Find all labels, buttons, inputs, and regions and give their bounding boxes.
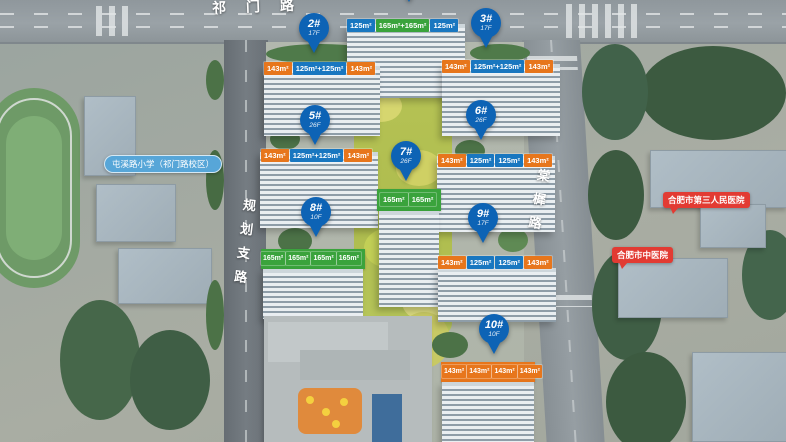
bubble-tail bbox=[670, 207, 679, 214]
unit-tag: 143m² bbox=[438, 154, 466, 167]
hospital-label-1[interactable]: 合肥市第三人民医院 bbox=[663, 192, 750, 208]
unit-tags-6: 143m² 125m² 125m² 143m² bbox=[438, 154, 552, 167]
pin-floors: 17F bbox=[308, 30, 319, 37]
building-pin-3[interactable]: 3# 17F bbox=[469, 8, 503, 48]
tree bbox=[432, 332, 468, 358]
unit-tag: 165m² bbox=[380, 193, 408, 206]
unit-tag: 165m² bbox=[286, 252, 310, 265]
pin-head: 5# 26F bbox=[300, 105, 330, 135]
tree-mass bbox=[130, 330, 210, 430]
pin-floors: 10F bbox=[310, 214, 321, 221]
unit-tag: 143m² bbox=[347, 62, 375, 75]
pin-tail bbox=[474, 127, 488, 140]
unit-tag: 143m² bbox=[442, 60, 470, 73]
unit-tag: 125m²+125m² bbox=[290, 149, 344, 162]
unit-tag: 125m² bbox=[495, 256, 523, 269]
building-pin-5[interactable]: 5# 26F bbox=[298, 105, 332, 145]
playground-dot bbox=[306, 396, 314, 404]
unit-tag: 143m² bbox=[492, 365, 516, 378]
school-building bbox=[118, 248, 212, 304]
pin-label: 10# bbox=[485, 320, 503, 331]
tower-8 bbox=[263, 269, 363, 319]
unit-tag: 143m² bbox=[438, 256, 466, 269]
pin-floors: 17F bbox=[477, 220, 488, 227]
building-pin-7[interactable]: 7# 26F bbox=[389, 141, 423, 181]
pin-tail bbox=[308, 132, 322, 145]
pin-head: 3# 17F bbox=[471, 8, 501, 38]
playground-dot bbox=[322, 408, 330, 416]
hospital-building bbox=[700, 204, 766, 248]
tree bbox=[206, 60, 224, 100]
unit-tags-3: 143m² 125m²+125m² 143m² bbox=[442, 60, 553, 73]
unit-tag: 143m² bbox=[525, 60, 553, 73]
unit-tags-10: 143m² 143m² 143m² 143m² bbox=[442, 365, 542, 378]
unit-tag: 143m² bbox=[261, 149, 289, 162]
unit-tag: 143m² bbox=[442, 365, 466, 378]
unit-tag: 165m² bbox=[337, 252, 361, 265]
hospital-label-text: 合肥市中医院 bbox=[617, 250, 668, 260]
pin-floors: 26F bbox=[475, 117, 486, 124]
playground-dot bbox=[332, 420, 340, 428]
unit-tags-9: 143m² 125m² 125m² 143m² bbox=[438, 256, 552, 269]
hospital-building bbox=[618, 258, 728, 318]
unit-tag: 143m² bbox=[264, 62, 292, 75]
tree-mass bbox=[588, 150, 644, 240]
tower-7 bbox=[379, 211, 439, 307]
rooftop bbox=[300, 350, 410, 380]
pin-head: 7# 26F bbox=[391, 141, 421, 171]
pin-label: 5# bbox=[309, 111, 321, 122]
pin-tail bbox=[402, 0, 416, 2]
tree-mass bbox=[60, 300, 140, 420]
pin-floors: 26F bbox=[309, 122, 320, 129]
unit-tag: 165m² bbox=[311, 252, 335, 265]
hospital-label-2[interactable]: 合肥市中医院 bbox=[612, 247, 673, 263]
building-pin-2[interactable]: 2# 17F bbox=[297, 13, 331, 53]
building-pin-9[interactable]: 9# 17F bbox=[466, 203, 500, 243]
pin-label: 8# bbox=[310, 203, 322, 214]
unit-tag: 143m² bbox=[524, 154, 552, 167]
playground bbox=[298, 388, 362, 434]
pin-label: 6# bbox=[475, 106, 487, 117]
tree-mass bbox=[606, 352, 686, 442]
unit-tag: 143m² bbox=[467, 365, 491, 378]
pin-label: 2# bbox=[308, 19, 320, 30]
pin-floors: 10F bbox=[488, 331, 499, 338]
crosswalk bbox=[96, 6, 130, 36]
tree bbox=[206, 280, 224, 350]
pin-head: 10# 10F bbox=[479, 314, 509, 344]
pool bbox=[372, 394, 402, 442]
unit-tags-7: 165m² 165m² bbox=[380, 193, 436, 206]
tree-mass bbox=[582, 44, 648, 140]
building-pin-6[interactable]: 6# 26F bbox=[464, 100, 498, 140]
unit-tag: 143m² bbox=[344, 149, 372, 162]
unit-tag: 143m² bbox=[524, 256, 552, 269]
pin-tail bbox=[476, 230, 490, 243]
unit-tag: 125m² bbox=[467, 256, 495, 269]
unit-tag: 125m²+125m² bbox=[471, 60, 525, 73]
playground-dot bbox=[340, 398, 348, 406]
sports-field bbox=[0, 88, 80, 288]
unit-tag: 165m² bbox=[409, 193, 437, 206]
unit-tag: 125m² bbox=[347, 19, 375, 32]
pin-tail bbox=[479, 35, 493, 48]
tree-mass bbox=[640, 46, 786, 140]
aerial-site-plan: 祁门路 规划支路 棠樨路 125m² 165m²+165m² 125m² 143… bbox=[0, 0, 786, 442]
pin-label: 3# bbox=[480, 14, 492, 25]
pin-tail bbox=[399, 168, 413, 181]
pin-head: 2# 17F bbox=[299, 13, 329, 43]
unit-tag: 165m²+165m² bbox=[376, 19, 430, 32]
school-building bbox=[96, 184, 176, 242]
pin-tail bbox=[309, 224, 323, 237]
hospital-building bbox=[692, 352, 786, 442]
tower-3 bbox=[442, 64, 560, 136]
crosswalk bbox=[566, 4, 638, 38]
infield bbox=[6, 116, 62, 260]
unit-tag: 125m² bbox=[430, 19, 458, 32]
pin-head: 8# 10F bbox=[301, 197, 331, 227]
unit-tag: 143m² bbox=[518, 365, 542, 378]
unit-tags-1: 125m² 165m²+165m² 125m² bbox=[347, 19, 458, 32]
pin-tail bbox=[307, 40, 321, 53]
building-pin-1[interactable]: 1# bbox=[392, 0, 426, 2]
pin-head: 6# 26F bbox=[466, 100, 496, 130]
unit-tags-5: 143m² 125m²+125m² 143m² bbox=[261, 149, 372, 162]
unit-tag: 125m² bbox=[467, 154, 495, 167]
unit-tag: 165m² bbox=[261, 252, 285, 265]
unit-tag: 125m² bbox=[495, 154, 523, 167]
hospital-label-text: 合肥市第三人民医院 bbox=[668, 195, 745, 205]
pin-label: 7# bbox=[400, 147, 412, 158]
unit-tags-8: 165m² 165m² 165m² 165m² bbox=[261, 252, 361, 265]
building-pin-8[interactable]: 8# 10F bbox=[299, 197, 333, 237]
building-pin-10[interactable]: 10# 10F bbox=[477, 314, 511, 354]
pin-tail bbox=[487, 341, 501, 354]
school-label[interactable]: 屯溪路小学（祁门路校区） bbox=[104, 155, 222, 173]
unit-tag: 125m²+125m² bbox=[293, 62, 347, 75]
pin-head: 9# 17F bbox=[468, 203, 498, 233]
unit-tags-2: 143m² 125m²+125m² 143m² bbox=[264, 62, 375, 75]
pin-label: 9# bbox=[477, 209, 489, 220]
bubble-tail bbox=[619, 262, 628, 269]
tower-10 bbox=[442, 382, 534, 442]
pin-floors: 26F bbox=[400, 158, 411, 165]
pin-floors: 17F bbox=[480, 25, 491, 32]
